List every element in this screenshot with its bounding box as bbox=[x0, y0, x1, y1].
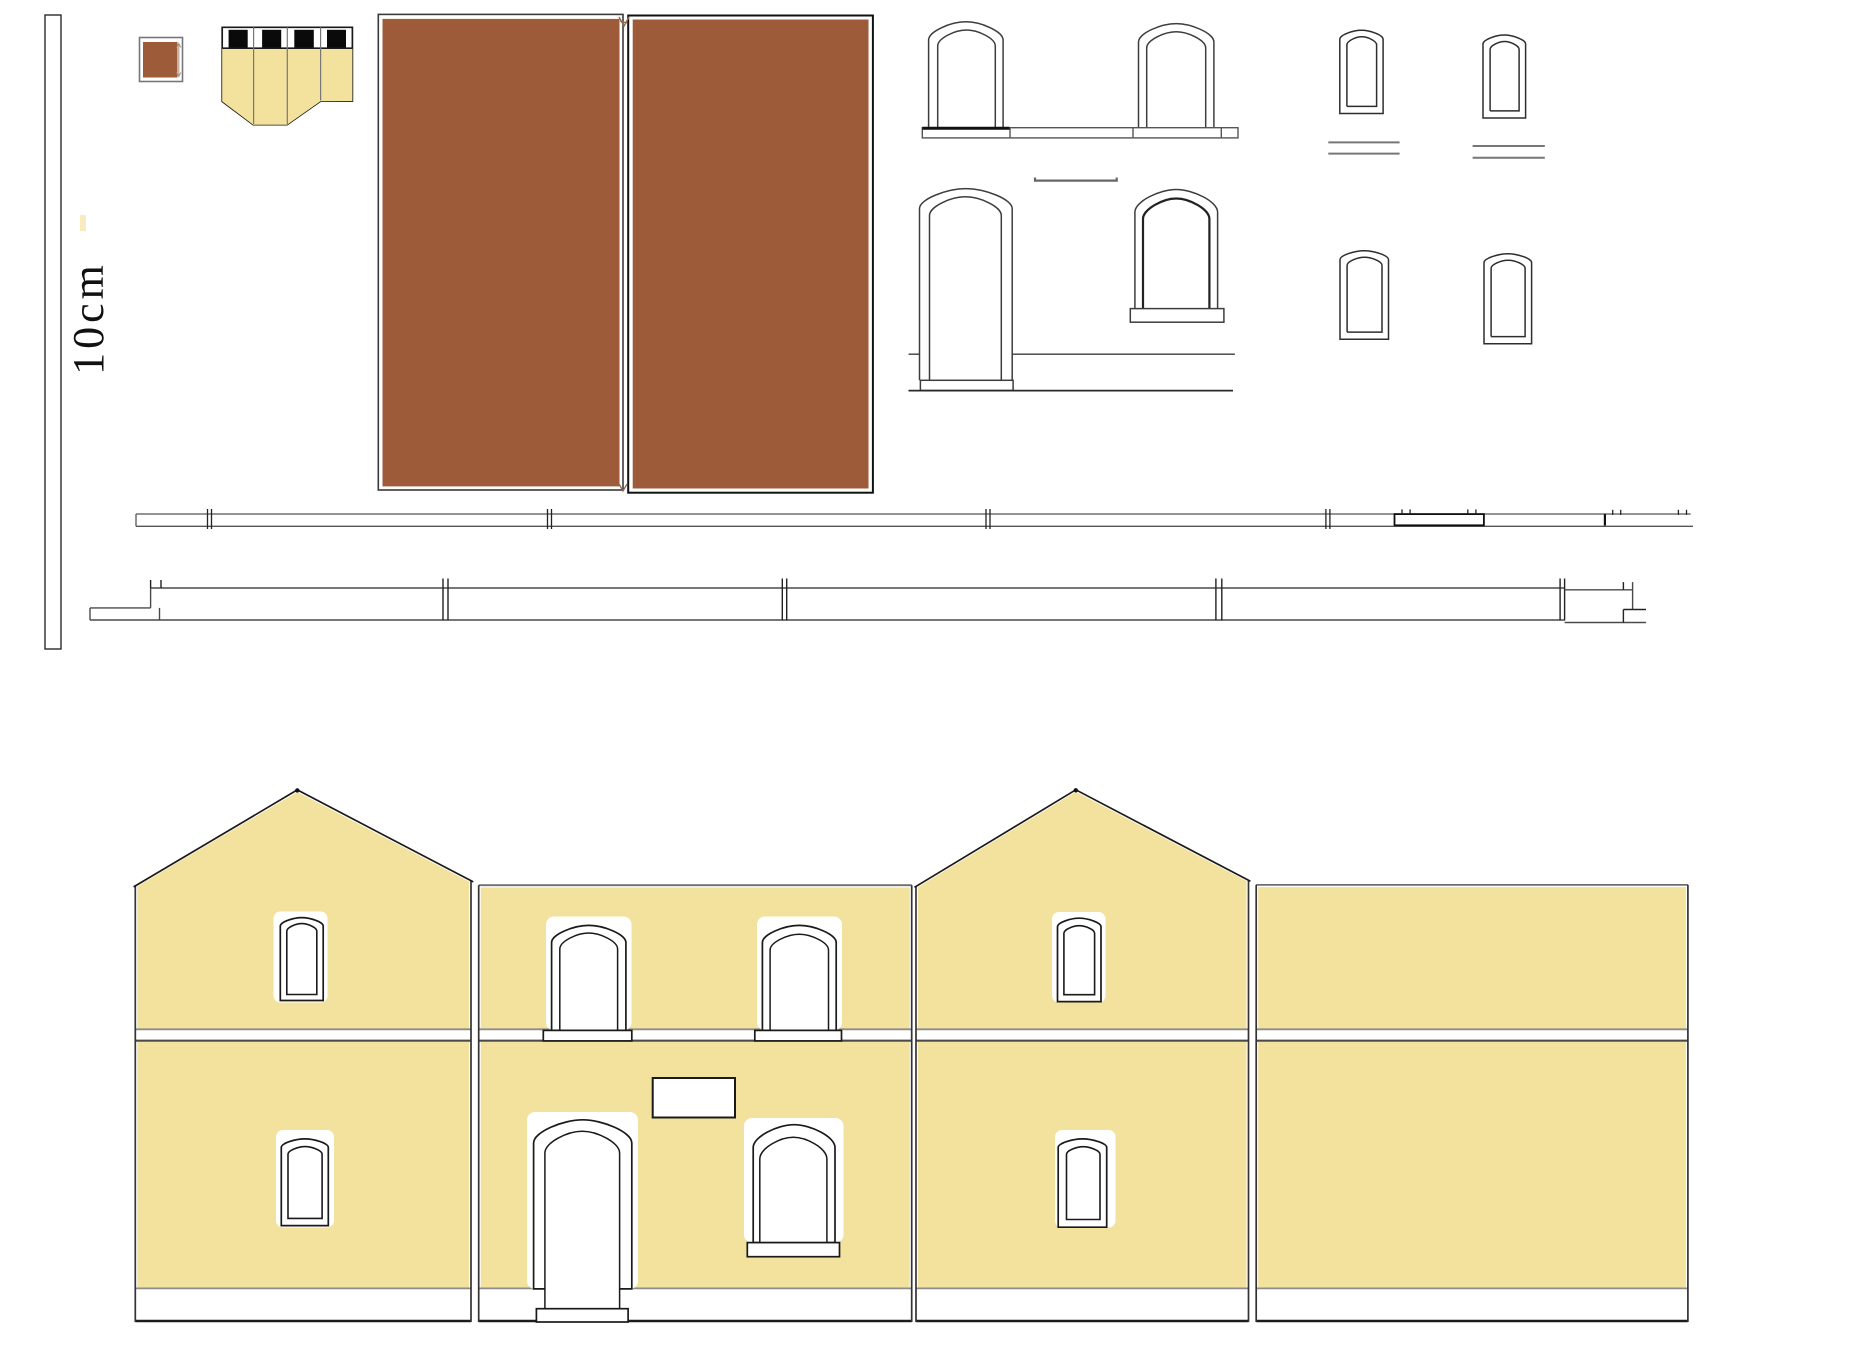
svg-text:10cm: 10cm bbox=[64, 261, 113, 375]
